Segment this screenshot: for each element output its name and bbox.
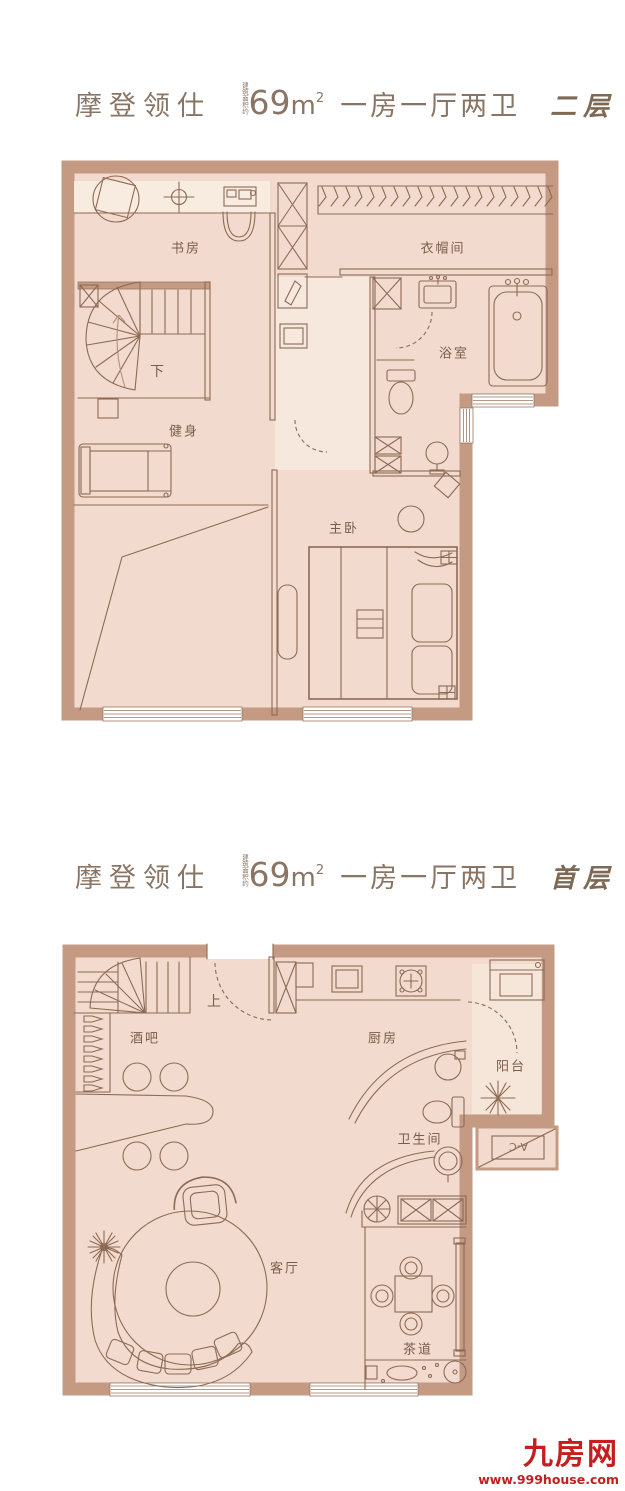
area-group: 建筑面积约 69 m 2 xyxy=(241,82,324,119)
area-exponent: 2 xyxy=(316,863,324,878)
room-label-bathroom: 浴室 xyxy=(439,343,469,362)
watermark-url: www.999house.com xyxy=(478,1473,619,1487)
stair-up-label: 上 xyxy=(207,991,221,1011)
plan-title-upper: 摩登领仕 建筑面积约 69 m 2 一房一厅两卫 二层 xyxy=(75,82,616,123)
room-label-living-room: 客厅 xyxy=(270,1258,300,1277)
layout-text: 一房一厅两卫 xyxy=(340,84,520,123)
watermark: 九房网 www.999house.com xyxy=(478,1438,619,1487)
floor-plan-lower: A-C xyxy=(69,943,557,1396)
area-unit: m xyxy=(291,865,316,891)
room-label-balcony: 阳台 xyxy=(496,1056,526,1075)
project-name: 摩登领仕 xyxy=(75,856,211,895)
room-label-gym: 健身 xyxy=(169,421,199,440)
layout-text: 一房一厅两卫 xyxy=(340,856,520,895)
plan-title-lower: 摩登领仕 建筑面积约 69 m 2 一房一厅两卫 首层 xyxy=(75,854,616,895)
area-unit: m xyxy=(291,93,316,119)
floor-tag: 首层 xyxy=(550,858,616,895)
project-name: 摩登领仕 xyxy=(75,84,211,123)
flower-icon xyxy=(88,1231,120,1263)
floorplan-drawing: A-C xyxy=(0,0,625,1491)
ac-label: A-C xyxy=(509,1140,528,1153)
room-label-kitchen: 厨房 xyxy=(368,1028,398,1047)
plant-icon xyxy=(481,1081,515,1115)
floor-plan-upper xyxy=(68,167,553,721)
floor-tag: 二层 xyxy=(550,86,616,123)
room-label-wc: 卫生间 xyxy=(397,1129,442,1148)
area-exponent: 2 xyxy=(316,91,324,106)
stair-down-label: 下 xyxy=(150,361,164,381)
watermark-brand: 九房网 xyxy=(478,1438,619,1473)
room-label-bar: 酒吧 xyxy=(130,1028,160,1047)
room-label-cloakroom: 衣帽间 xyxy=(420,238,465,257)
stove xyxy=(396,966,426,996)
area-value: 69 xyxy=(249,858,291,891)
room-label-master-bedroom: 主卧 xyxy=(329,518,359,537)
area-group: 建筑面积约 69 m 2 xyxy=(241,854,324,891)
ac-platform: A-C xyxy=(477,1127,557,1169)
area-note: 建筑面积约 xyxy=(241,82,248,115)
floorplan-sheet: A-C xyxy=(0,0,625,1491)
room-label-tea-room: 茶道 xyxy=(403,1339,433,1358)
room-label-study: 书房 xyxy=(171,238,201,257)
area-value: 69 xyxy=(249,86,291,119)
area-note: 建筑面积约 xyxy=(241,854,248,887)
